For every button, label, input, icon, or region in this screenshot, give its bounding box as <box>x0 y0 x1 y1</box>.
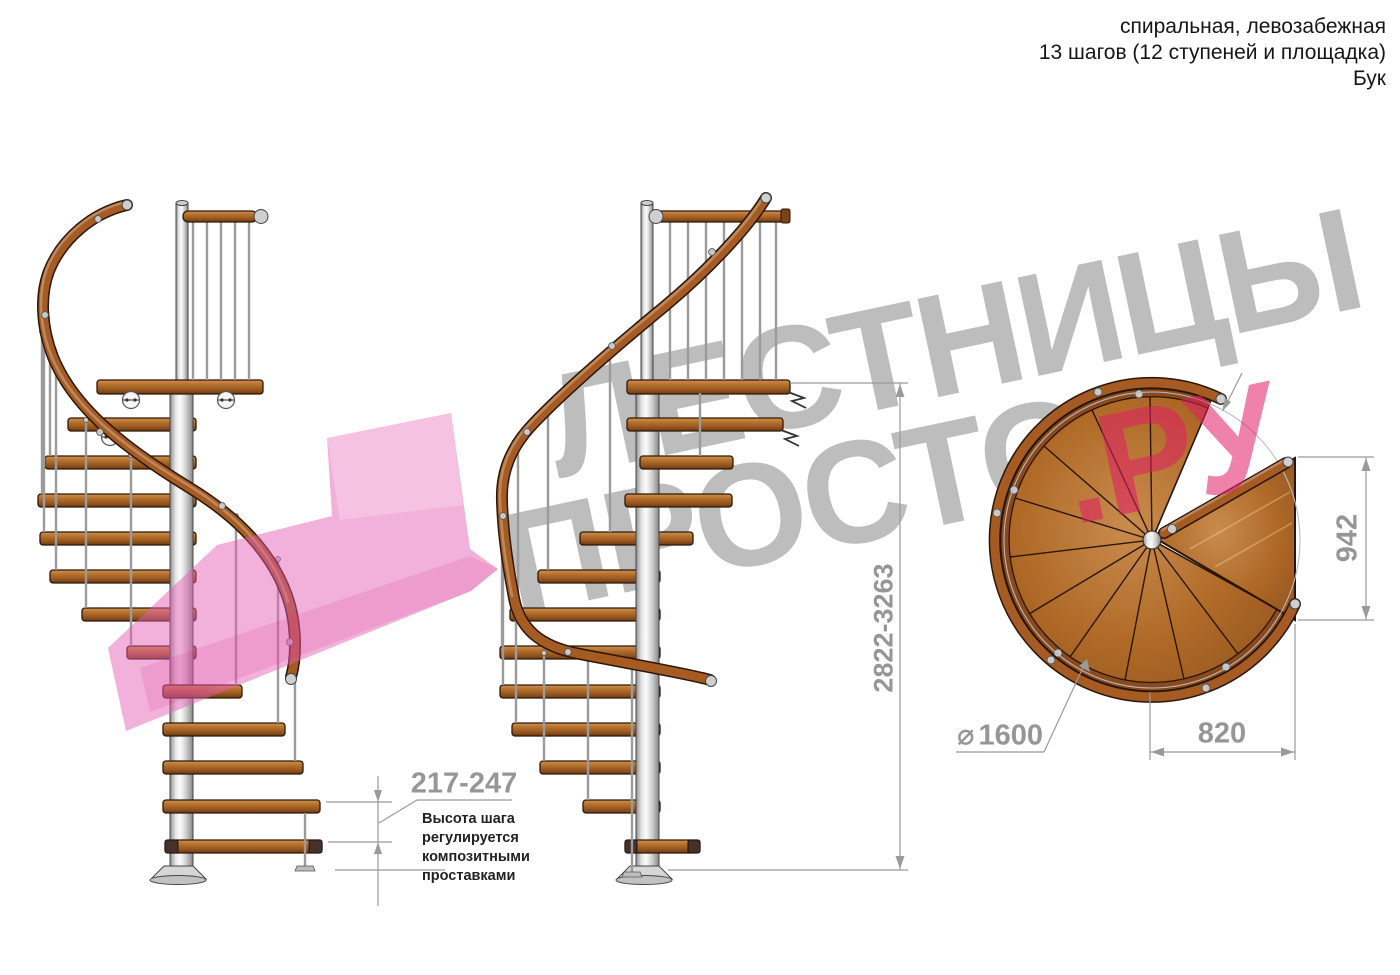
label-total-height: 2822-3263 <box>869 563 900 692</box>
title-block: спиральная, левозабежная 13 шагов (12 ст… <box>1039 14 1386 92</box>
plan-handrail-leader <box>1222 373 1242 412</box>
label-step-height: 217-247 <box>411 768 517 801</box>
diameter-symbol-icon: ⌀ <box>957 718 974 752</box>
label-diameter: ⌀1600 <box>957 718 1043 753</box>
label-platform-depth: 942 <box>1332 514 1365 562</box>
dimension-lines <box>0 0 1400 975</box>
label-platform-width: 820 <box>1198 718 1246 751</box>
title-material: Бук <box>1039 66 1386 92</box>
title-type: спиральная, левозабежная <box>1039 14 1386 40</box>
title-steps: 13 шагов (12 ступеней и площадка) <box>1039 40 1386 66</box>
label-step-height-note: Высота шага регулируется композитными пр… <box>422 810 552 886</box>
label-diameter-value: 1600 <box>978 720 1043 752</box>
drawing-page: ЛЕСТНИЦЫ ПРОСТО <box>0 0 1400 975</box>
